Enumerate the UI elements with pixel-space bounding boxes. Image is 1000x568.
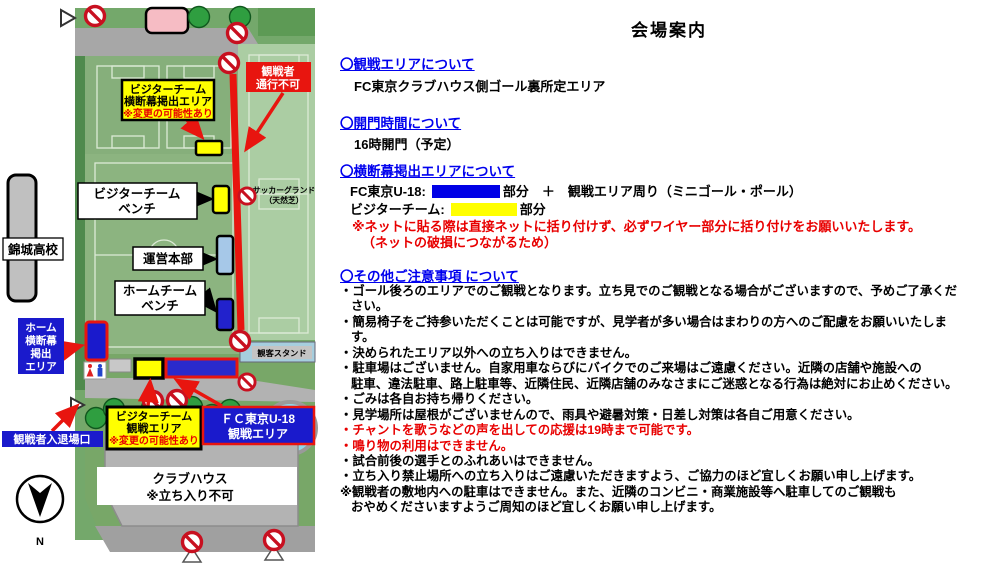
kinjo-school-label: 錦城高校 xyxy=(3,238,63,260)
visitor-viewing-spot xyxy=(135,359,163,378)
svg-text:運営本部: 運営本部 xyxy=(143,251,194,266)
no-pass-label: 観戦者 通行不可 xyxy=(246,62,311,92)
home-banner-spot xyxy=(86,322,107,360)
svg-text:ＦＣ東京U-18: ＦＣ東京U-18 xyxy=(221,411,295,426)
svg-text:（天然芝）: （天然芝） xyxy=(265,195,304,205)
svg-text:ビジターチーム: ビジターチーム xyxy=(94,186,181,201)
svg-text:ビジターチーム: ビジターチーム xyxy=(116,409,192,423)
no-entry-icon xyxy=(239,188,255,204)
banner-fc-suffix: 部分 ＋ 観戦エリア周り（ミニゴール・ポール） xyxy=(503,184,802,199)
gate-time-body: 16時開門（予定） xyxy=(354,134,459,153)
note-line-red: ・鳴り物の利用はできません。 xyxy=(340,439,958,454)
entrance-label: 観戦者入退場口 xyxy=(2,431,103,447)
pink-building xyxy=(146,8,188,33)
svg-text:ベンチ: ベンチ xyxy=(118,202,156,216)
svg-text:横断幕掲出エリア: 横断幕掲出エリア xyxy=(124,94,212,108)
viewing-area-body: FC東京クラブハウス側ゴール裏所定エリア xyxy=(354,76,605,95)
visitor-viewing-label: ビジターチーム 観戦エリア ※変更の可能性あり xyxy=(107,407,201,449)
note-line: ・駐車場はございません。自家用車ならびにバイクでのご来場はご遠慮ください。近隣の… xyxy=(340,361,958,376)
note-line: ・簡易椅子をご持参いただくことは可能ですが、見学者が多い場合はまわりの方へのご配… xyxy=(340,315,958,330)
note-line: さい。 xyxy=(340,299,958,314)
svg-text:ビジターチーム: ビジターチーム xyxy=(130,82,206,96)
note-line: ・試合前後の選手とのふれあいはできません。 xyxy=(340,454,958,469)
visitor-bench-label: ビジターチーム ベンチ xyxy=(78,183,197,219)
ops-hq-marker xyxy=(217,236,233,274)
gray-kiosk xyxy=(109,359,131,372)
note-line: す。 xyxy=(340,330,958,345)
info-panel: 会場案内 〇観戦エリアについて FC東京クラブハウス側ゴール裏所定エリア 〇開門… xyxy=(340,0,998,563)
note-line: おやめくださいますようご周知のほど宜しくお願い申し上げます。 xyxy=(340,500,958,515)
other-notes-list: ・ゴール後ろのエリアでのご観戦となります。立ち見でのご観戦となる場合がございます… xyxy=(340,284,958,516)
heading-viewing-area: 〇観戦エリアについて xyxy=(340,53,475,73)
yellow-swatch xyxy=(451,203,517,216)
upper-visitor-banner-spot xyxy=(196,141,222,155)
note-line: ・ゴール後ろのエリアでのご観戦となります。立ち見でのご観戦となる場合がございます… xyxy=(340,284,958,299)
note-line: ・立ち入り禁止場所への立ち入りはご遠慮いただきますよう、ご協力のほど宜しくお願い… xyxy=(340,469,958,484)
svg-text:エリア: エリア xyxy=(25,361,57,373)
ops-hq-label: 運営本部 xyxy=(133,247,203,270)
note-line: ※観戦者の敷地内への駐車はできません。また、近隣のコンビニ・商業施設等へ駐車して… xyxy=(340,485,958,500)
no-entry-icon xyxy=(231,332,250,351)
svg-text:掲出: 掲出 xyxy=(31,347,52,360)
stand-label: 観客スタンド xyxy=(252,346,312,359)
svg-text:観戦者入退場口: 観戦者入退場口 xyxy=(14,432,91,446)
clubhouse-label: クラブハウス ※立ち入り不可 xyxy=(97,467,297,505)
u18-viewing-spot xyxy=(166,359,237,377)
venue-map: 錦城高校 サッカーグランド （天然芝） 観客スタンド xyxy=(0,0,340,563)
no-entry-icon xyxy=(239,374,255,390)
home-banner-area-label: ホーム 横断幕 掲出 エリア xyxy=(18,318,64,374)
no-entry-icon xyxy=(265,531,284,550)
heading-other-notes: 〇その他ご注意事項 について xyxy=(340,265,519,285)
gate-triangle-icon xyxy=(61,10,75,26)
venue-map-svg: 錦城高校 サッカーグランド （天然芝） 観客スタンド xyxy=(0,0,340,563)
no-entry-icon xyxy=(228,24,247,43)
note-line: ・見学場所は屋根がございませんので、雨具や避暑対策・日差し対策は各自ご用意くださ… xyxy=(340,408,958,423)
banner-visitor-label: ビジターチーム: xyxy=(350,202,445,217)
banner-fc-line: FC東京U-18:部分 ＋ 観戦エリア周り（ミニゴール・ポール） xyxy=(350,181,802,200)
no-entry-icon xyxy=(183,533,202,552)
banner-visitor-suffix: 部分 xyxy=(520,202,546,217)
restroom-icon xyxy=(84,362,106,379)
svg-text:観戦エリア: 観戦エリア xyxy=(228,426,288,441)
banner-note-2: （ネットの破損につながるため） xyxy=(362,232,557,251)
svg-text:ホームチーム: ホームチーム xyxy=(123,284,198,298)
compass-icon: N xyxy=(17,476,63,548)
svg-text:※立ち入り不可: ※立ち入り不可 xyxy=(146,488,234,503)
svg-text:観戦者: 観戦者 xyxy=(262,64,295,78)
svg-text:横断幕: 横断幕 xyxy=(25,334,57,347)
svg-text:通行不可: 通行不可 xyxy=(256,77,300,91)
svg-text:ベンチ: ベンチ xyxy=(141,299,179,313)
heading-banner-area: 〇横断幕掲出エリアについて xyxy=(340,160,515,180)
no-entry-icon xyxy=(86,7,105,26)
svg-text:※変更の可能性あり: ※変更の可能性あり xyxy=(109,434,199,447)
svg-text:ホーム: ホーム xyxy=(25,322,57,334)
home-bench-label: ホームチーム ベンチ xyxy=(115,281,205,315)
note-line: ・ごみは各自お持ち帰りください。 xyxy=(340,392,958,407)
svg-text:N: N xyxy=(36,536,44,548)
note-line: ・決められたエリア以外への立ち入りはできません。 xyxy=(340,346,958,361)
visitor-bench-marker xyxy=(213,186,229,213)
svg-text:サッカーグランド: サッカーグランド xyxy=(253,185,316,195)
note-line-red: ・チャントを歌うなどの声を出しての応援は19時まで可能です。 xyxy=(340,423,958,438)
home-bench-marker xyxy=(217,299,233,330)
svg-text:錦城高校: 錦城高校 xyxy=(7,242,59,257)
svg-text:※変更の可能性あり: ※変更の可能性あり xyxy=(123,107,213,120)
venue-guide-page: { "title": "会場案内", "sections": { "viewin… xyxy=(0,0,1000,563)
svg-text:観客スタンド: 観客スタンド xyxy=(257,348,306,358)
visitor-banner-area-label: ビジターチーム 横断幕掲出エリア ※変更の可能性あり xyxy=(122,80,214,120)
blue-swatch xyxy=(432,185,500,198)
no-entry-icon xyxy=(220,54,239,73)
svg-text:クラブハウス: クラブハウス xyxy=(152,471,227,486)
note-line: 駐車、違法駐車、路上駐車等、近隣住民、近隣店舗のみなさまにご迷惑となる行為は絶対… xyxy=(340,377,958,392)
heading-gate-time: 〇開門時間について xyxy=(340,112,461,132)
tree-icon xyxy=(189,7,210,28)
u18-viewing-label: ＦＣ東京U-18 観戦エリア xyxy=(203,407,314,444)
svg-text:観戦エリア: 観戦エリア xyxy=(127,421,182,435)
banner-fc-label: FC東京U-18: xyxy=(350,184,426,199)
page-title: 会場案内 xyxy=(340,16,998,41)
